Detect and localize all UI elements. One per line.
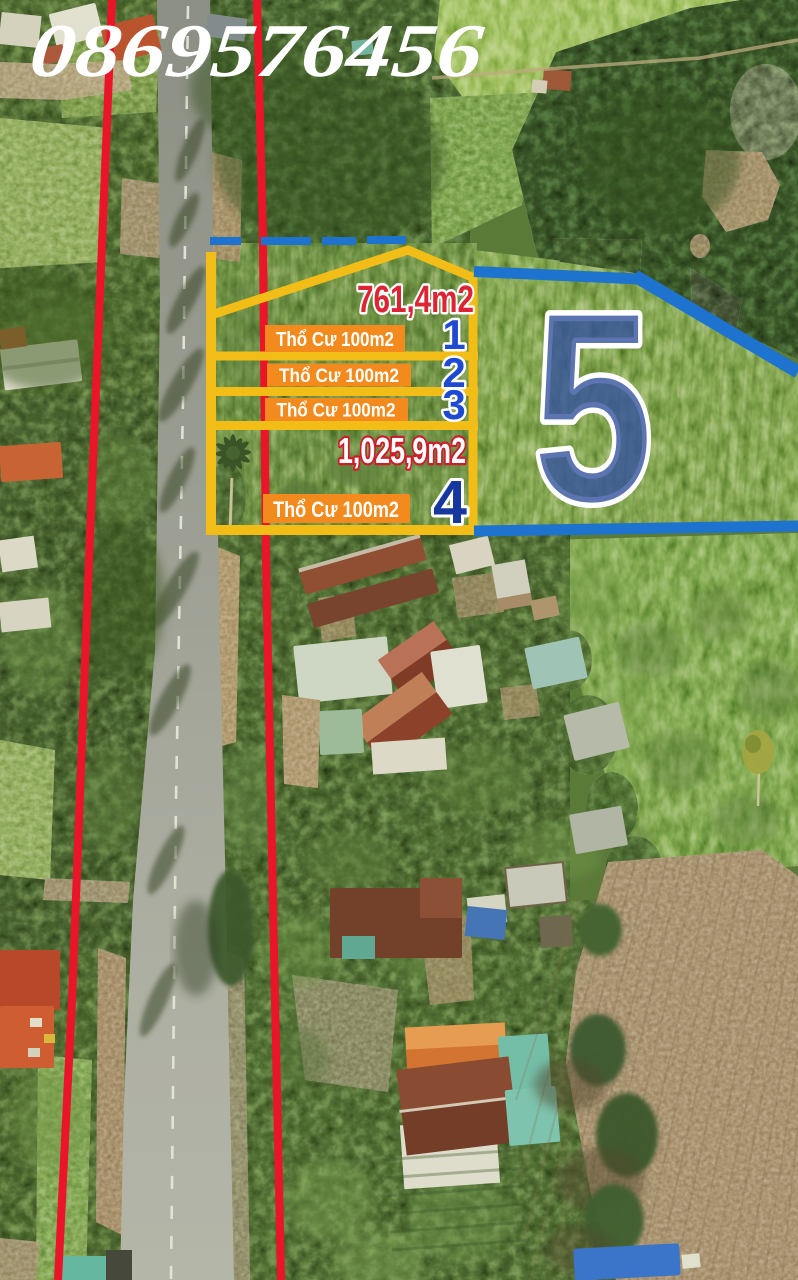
svg-text:Thổ Cư 100m2: Thổ Cư 100m2: [279, 366, 399, 387]
svg-text:5: 5: [533, 258, 652, 557]
svg-text:4: 4: [433, 468, 467, 536]
svg-text:Thổ Cư 100m2: Thổ Cư 100m2: [276, 329, 394, 351]
svg-text:0869576456: 0869576456: [26, 9, 488, 93]
svg-text:Thổ Cư 100m2: Thổ Cư 100m2: [273, 497, 399, 522]
svg-text:1,025,9m2: 1,025,9m2: [338, 430, 466, 471]
svg-text:3: 3: [442, 381, 465, 428]
svg-text:Thổ Cư 100m2: Thổ Cư 100m2: [277, 401, 396, 422]
